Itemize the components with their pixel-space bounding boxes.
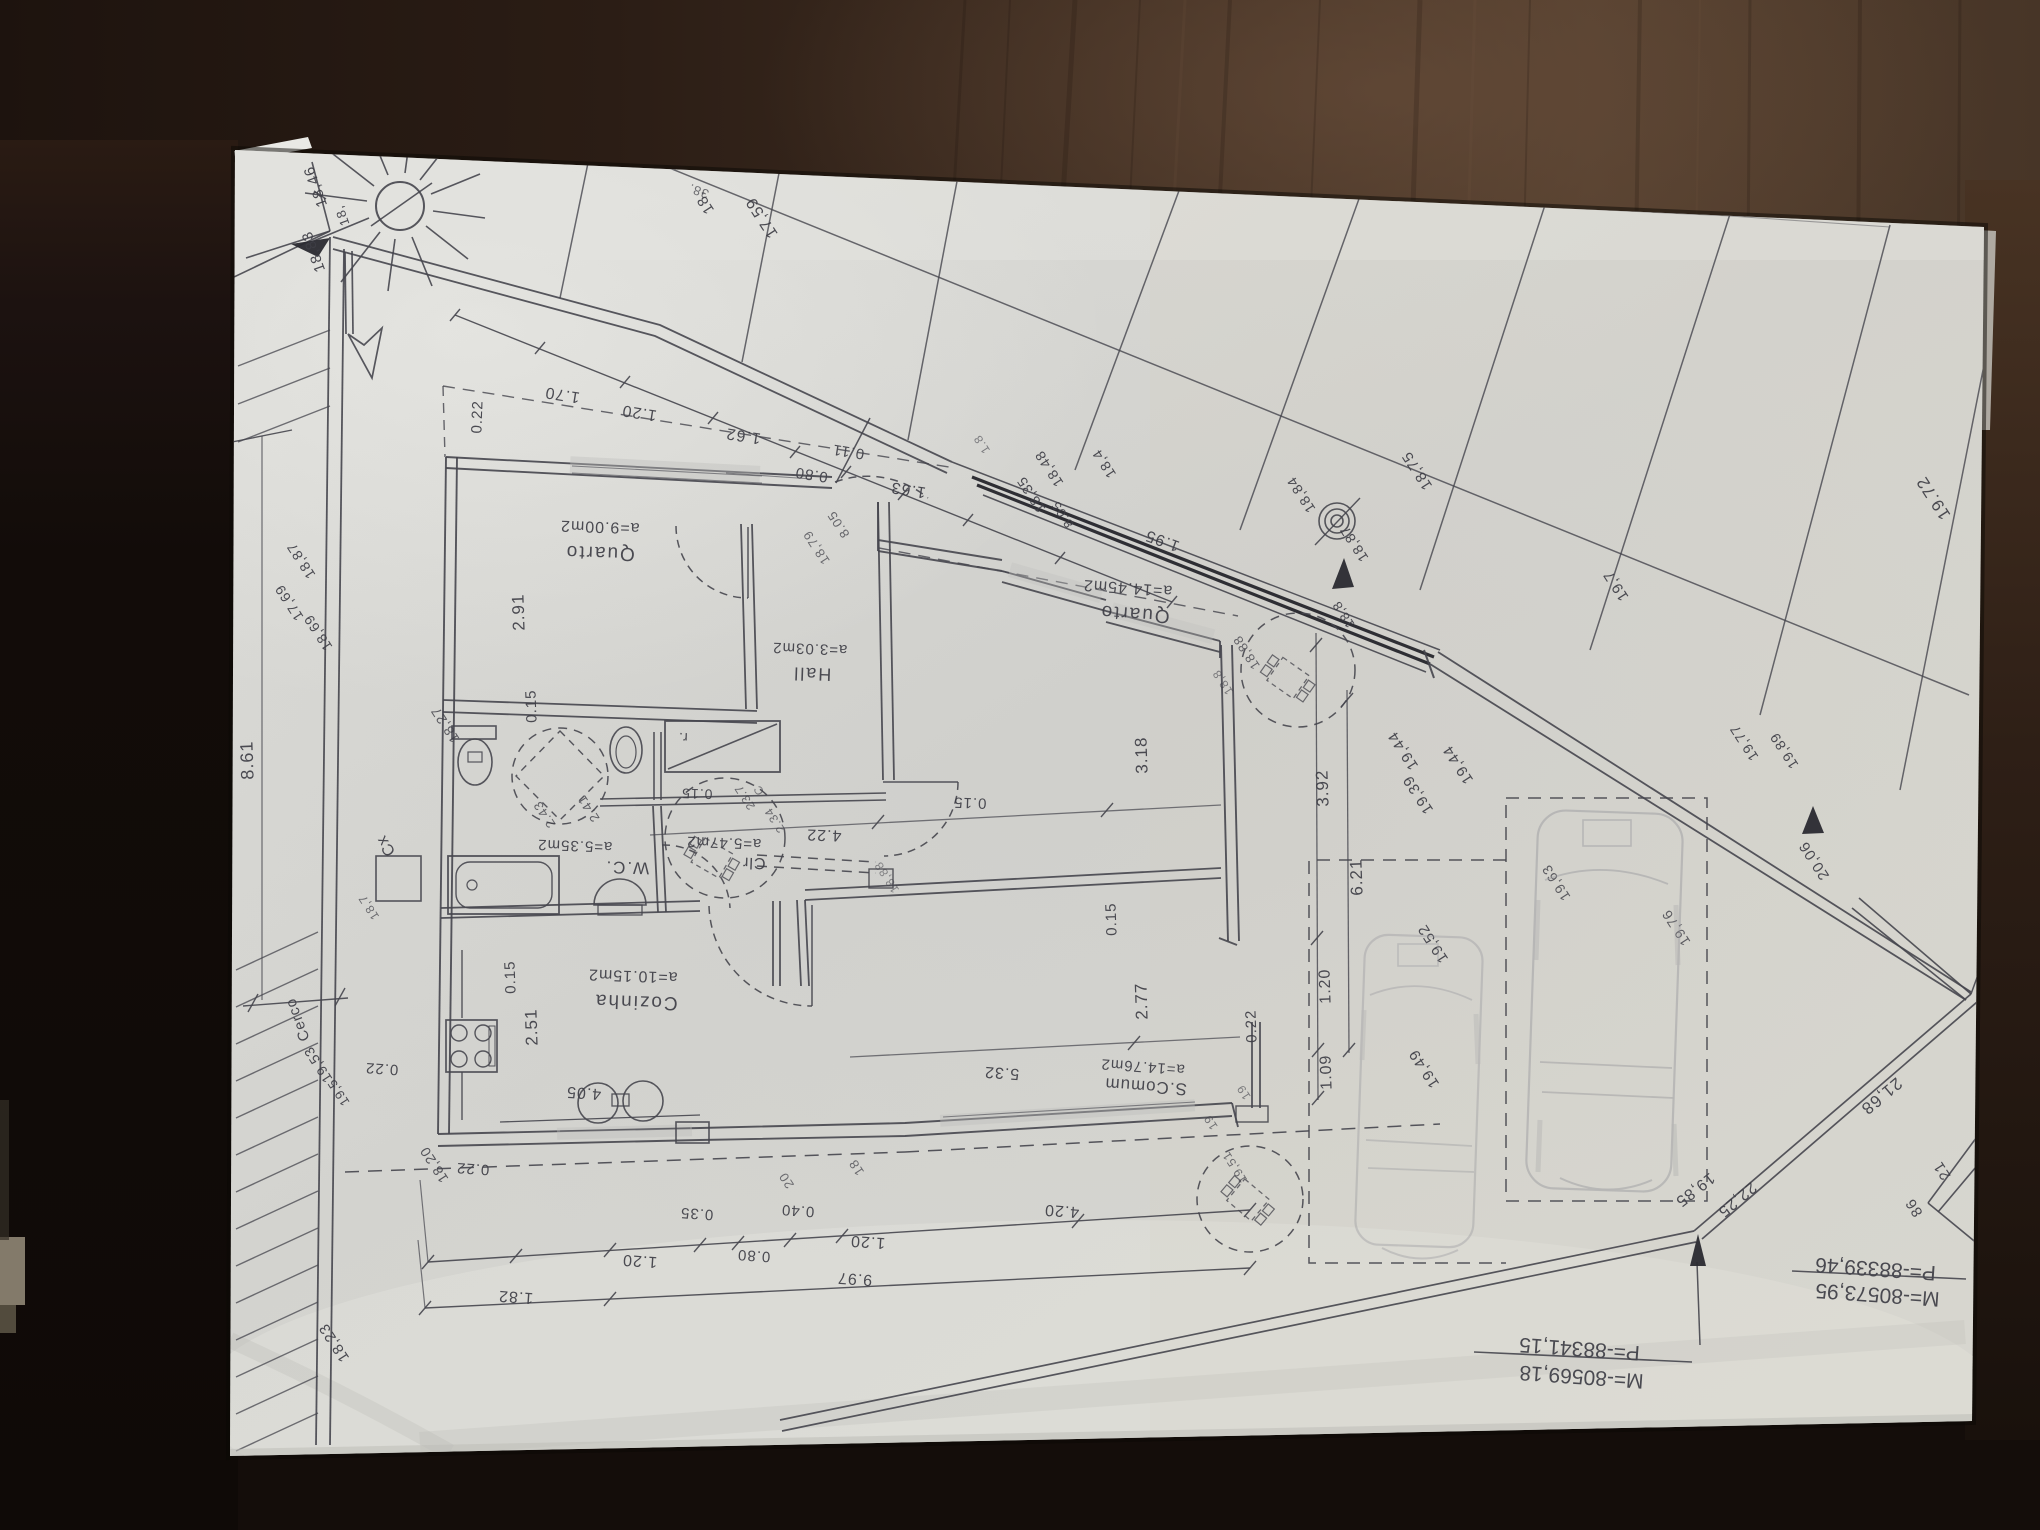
svg-text:a=5.47m2: a=5.47m2 xyxy=(686,833,762,853)
svg-text:1.20: 1.20 xyxy=(850,1232,886,1251)
svg-text:0.15: 0.15 xyxy=(501,960,519,994)
svg-text:Cozinha: Cozinha xyxy=(594,990,678,1014)
svg-text:9.97: 9.97 xyxy=(837,1269,873,1288)
svg-text:0.22: 0.22 xyxy=(468,400,486,434)
svg-text:0.80: 0.80 xyxy=(737,1246,771,1265)
svg-text:Quarto: Quarto xyxy=(564,541,635,564)
svg-text:0.22: 0.22 xyxy=(1242,1009,1260,1043)
svg-text:1.09: 1.09 xyxy=(1317,1054,1335,1090)
svg-text:0.40: 0.40 xyxy=(781,1201,815,1220)
svg-text:6.21: 6.21 xyxy=(1346,858,1366,896)
svg-text:a=3.03m2: a=3.03m2 xyxy=(772,639,848,659)
svg-text:4.05: 4.05 xyxy=(566,1083,602,1102)
svg-text:0.15: 0.15 xyxy=(1102,902,1120,936)
svg-text:4.20: 4.20 xyxy=(1044,1201,1080,1220)
svg-text:2.51: 2.51 xyxy=(521,1008,541,1046)
svg-text:0.15: 0.15 xyxy=(522,689,540,723)
svg-text:Clr: Clr xyxy=(742,854,766,872)
svg-text:1.20: 1.20 xyxy=(622,1251,658,1270)
svg-text:a=5.35m2: a=5.35m2 xyxy=(537,836,613,856)
svg-text:0.35: 0.35 xyxy=(680,1204,714,1223)
svg-text:1.82: 1.82 xyxy=(498,1287,534,1306)
svg-text:3.18: 3.18 xyxy=(1131,736,1151,774)
svg-text:5.32: 5.32 xyxy=(984,1063,1020,1082)
svg-text:Hall: Hall xyxy=(792,663,832,684)
svg-text:a=10.15m2: a=10.15m2 xyxy=(588,965,678,985)
svg-text:2.91: 2.91 xyxy=(508,593,528,631)
svg-text:2.77: 2.77 xyxy=(1131,982,1151,1020)
svg-text:1.20: 1.20 xyxy=(1316,968,1334,1004)
svg-text:r.: r. xyxy=(678,730,688,746)
svg-text:W.C.: W.C. xyxy=(604,857,649,878)
svg-text:3.92: 3.92 xyxy=(1312,769,1332,807)
svg-text:4.22: 4.22 xyxy=(806,825,842,843)
svg-text:0.15: 0.15 xyxy=(681,785,713,802)
svg-text:0.15: 0.15 xyxy=(953,793,987,811)
svg-text:a=9.00m2: a=9.00m2 xyxy=(560,517,640,537)
svg-text:0.22: 0.22 xyxy=(365,1059,399,1078)
svg-text:8.61: 8.61 xyxy=(236,740,257,780)
